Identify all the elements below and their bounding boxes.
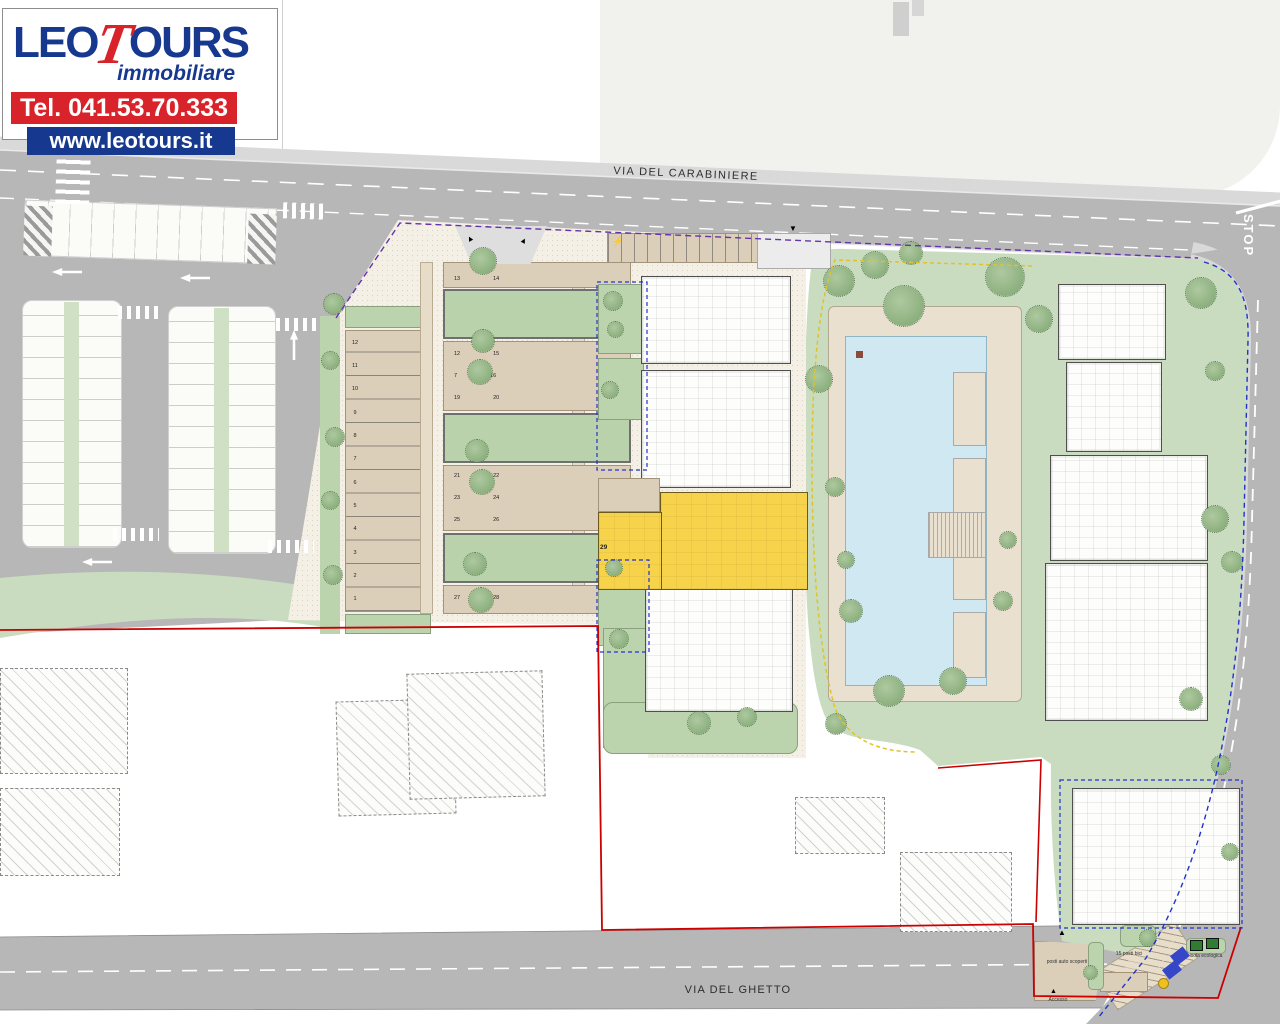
existing-building xyxy=(0,668,128,774)
tree-icon xyxy=(884,286,924,326)
north-utility-box xyxy=(893,2,909,36)
logo-box: LEOTOURS immobiliare Tel. 041.53.70.333 … xyxy=(2,8,278,140)
building-block xyxy=(641,370,791,488)
label-uncovered-parking: posti auto scoperti xyxy=(1036,960,1098,966)
highlighted-unit[interactable] xyxy=(660,492,808,590)
building-block xyxy=(1072,788,1240,925)
stall-number: 25 xyxy=(454,517,460,523)
tree-icon xyxy=(326,428,344,446)
tree-icon xyxy=(602,382,618,398)
north-utility-box xyxy=(912,0,924,16)
corner-marker xyxy=(1158,978,1169,989)
stall-number: 1 xyxy=(353,596,356,602)
stop-marking: STOP xyxy=(1241,214,1256,257)
label-eco-island: isola ecologica xyxy=(1184,954,1228,960)
access-arrow-icon: ▲ xyxy=(1050,988,1057,995)
existing-building xyxy=(406,670,545,800)
stall-number: 21 xyxy=(454,473,460,479)
tree-icon xyxy=(840,600,862,622)
brand-phone: Tel. 041.53.70.333 xyxy=(11,92,237,124)
tree-icon xyxy=(900,242,922,264)
parking-island-west-median xyxy=(64,302,79,546)
stall-number: 14 xyxy=(493,276,499,282)
label-access: Accesso xyxy=(1036,998,1080,1004)
tree-icon xyxy=(824,266,854,296)
road-arrow xyxy=(52,268,82,276)
road-label-bottom: VIA DEL GHETTO xyxy=(628,984,848,996)
stall-number: 27 xyxy=(454,595,460,601)
tree-icon xyxy=(1084,966,1097,979)
tree-icon xyxy=(464,553,486,575)
tree-icon xyxy=(688,712,710,734)
tree-icon xyxy=(322,352,339,369)
stall-number: 11 xyxy=(352,363,358,369)
crosswalk xyxy=(55,151,91,204)
stall-number: 12 xyxy=(352,340,358,346)
tree-icon xyxy=(468,360,492,384)
pool-platform xyxy=(953,372,986,446)
brand-website: www.leotours.it xyxy=(27,127,235,155)
tree-icon xyxy=(1026,306,1052,332)
stall-number: 9 xyxy=(353,410,356,416)
stall-number: 3 xyxy=(353,550,356,556)
tree-icon xyxy=(862,252,888,278)
existing-building xyxy=(900,852,1012,932)
eco-bin xyxy=(1190,940,1203,951)
stall-number: 7 xyxy=(353,456,356,462)
stall-number: 6 xyxy=(353,480,356,486)
tree-icon xyxy=(826,478,844,496)
utility-row xyxy=(598,478,660,512)
stall-number: 7 xyxy=(454,373,457,379)
pergola-cap xyxy=(345,614,431,634)
stall-number: 23 xyxy=(454,495,460,501)
building-block xyxy=(645,578,793,712)
tree-icon xyxy=(1140,930,1156,946)
tree-icon xyxy=(470,248,496,274)
tree-icon xyxy=(1186,278,1216,308)
crosswalk xyxy=(276,318,318,331)
tree-icon xyxy=(469,588,493,612)
building-block xyxy=(641,276,791,364)
driveway-entrance-east xyxy=(757,233,831,269)
stall-number: 2 xyxy=(353,573,356,579)
building-block xyxy=(1058,284,1166,360)
access-arrow-icon: ▲ xyxy=(1058,928,1066,937)
tree-icon xyxy=(1180,688,1202,710)
crosswalk xyxy=(268,540,314,553)
eco-bin xyxy=(1206,938,1219,949)
tree-icon xyxy=(1212,756,1230,774)
tree-icon xyxy=(604,292,622,310)
electric-icon: ⚡ xyxy=(612,236,623,247)
tree-icon xyxy=(1222,552,1242,572)
parcel-divider-line xyxy=(282,0,283,150)
stall-number: 8 xyxy=(353,433,356,439)
tree-icon xyxy=(466,440,488,462)
stall-column-west: 121110987654321 xyxy=(345,330,431,612)
crosswalk xyxy=(113,528,159,541)
stall-number: 19 xyxy=(454,395,460,401)
pool-marker xyxy=(856,351,863,358)
tree-icon xyxy=(1000,532,1016,548)
stall-number: 12 xyxy=(454,351,460,357)
stall-number: 26 xyxy=(493,517,499,523)
existing-building xyxy=(0,788,120,876)
stall-number: 20 xyxy=(493,395,499,401)
stall-number: 22 xyxy=(493,473,499,479)
building-block xyxy=(1050,455,1208,561)
label-bike-parking: 15 posti bici xyxy=(1108,952,1150,958)
pool-platform xyxy=(953,458,986,520)
stall-number: 28 xyxy=(493,595,499,601)
tree-icon xyxy=(608,322,623,337)
tree-icon xyxy=(806,366,832,392)
highlighted-unit-wing[interactable] xyxy=(598,512,662,590)
block-north-parcel xyxy=(600,0,1280,196)
road-arrow xyxy=(180,274,210,282)
tree-icon xyxy=(738,708,756,726)
tree-icon xyxy=(606,560,622,576)
walkway xyxy=(420,262,433,614)
tree-icon xyxy=(472,330,494,352)
tree-icon xyxy=(874,676,904,706)
brand-logo: LEOTOURS xyxy=(3,9,277,66)
tree-icon xyxy=(324,294,344,314)
stall-number: 5 xyxy=(353,503,356,509)
stall-number: 24 xyxy=(493,495,499,501)
parking-island-east-median xyxy=(214,308,229,552)
entrance-arrow-icon: ▼ xyxy=(789,224,797,233)
road-arrow xyxy=(82,558,112,566)
building-block xyxy=(1066,362,1162,452)
pergola-cap xyxy=(345,306,431,328)
tree-icon xyxy=(470,470,494,494)
highlighted-unit-number: 29 xyxy=(600,544,607,551)
tree-icon xyxy=(838,552,854,568)
parking-hatch-end xyxy=(247,214,277,265)
stall-number: 15 xyxy=(493,351,499,357)
tree-icon xyxy=(994,592,1012,610)
crosswalk xyxy=(118,306,162,319)
parking-hatch-end xyxy=(23,206,53,257)
stall-number: 4 xyxy=(353,526,356,532)
tree-icon xyxy=(1202,506,1228,532)
stall-number: 10 xyxy=(352,386,358,392)
tree-icon xyxy=(610,630,628,648)
tree-icon xyxy=(324,566,342,584)
brand-part2: OURS xyxy=(129,18,248,67)
corner-walk xyxy=(1100,972,1148,992)
pool-steps xyxy=(928,512,986,558)
crosswalk xyxy=(283,202,326,219)
tree-icon xyxy=(322,492,339,509)
tree-icon xyxy=(826,714,846,734)
tree-icon xyxy=(986,258,1024,296)
parking-island-top xyxy=(23,200,277,265)
tree-icon xyxy=(1222,844,1238,860)
site-plan-canvas: 121110987654321 1314 1215 716 1920 2122 … xyxy=(0,0,1280,1024)
existing-building xyxy=(795,797,885,854)
tree-icon xyxy=(940,668,966,694)
tree-icon xyxy=(1206,362,1224,380)
road-arrow xyxy=(290,330,298,360)
brand-part1: LEO xyxy=(13,18,97,67)
stall-number: 13 xyxy=(454,276,460,282)
